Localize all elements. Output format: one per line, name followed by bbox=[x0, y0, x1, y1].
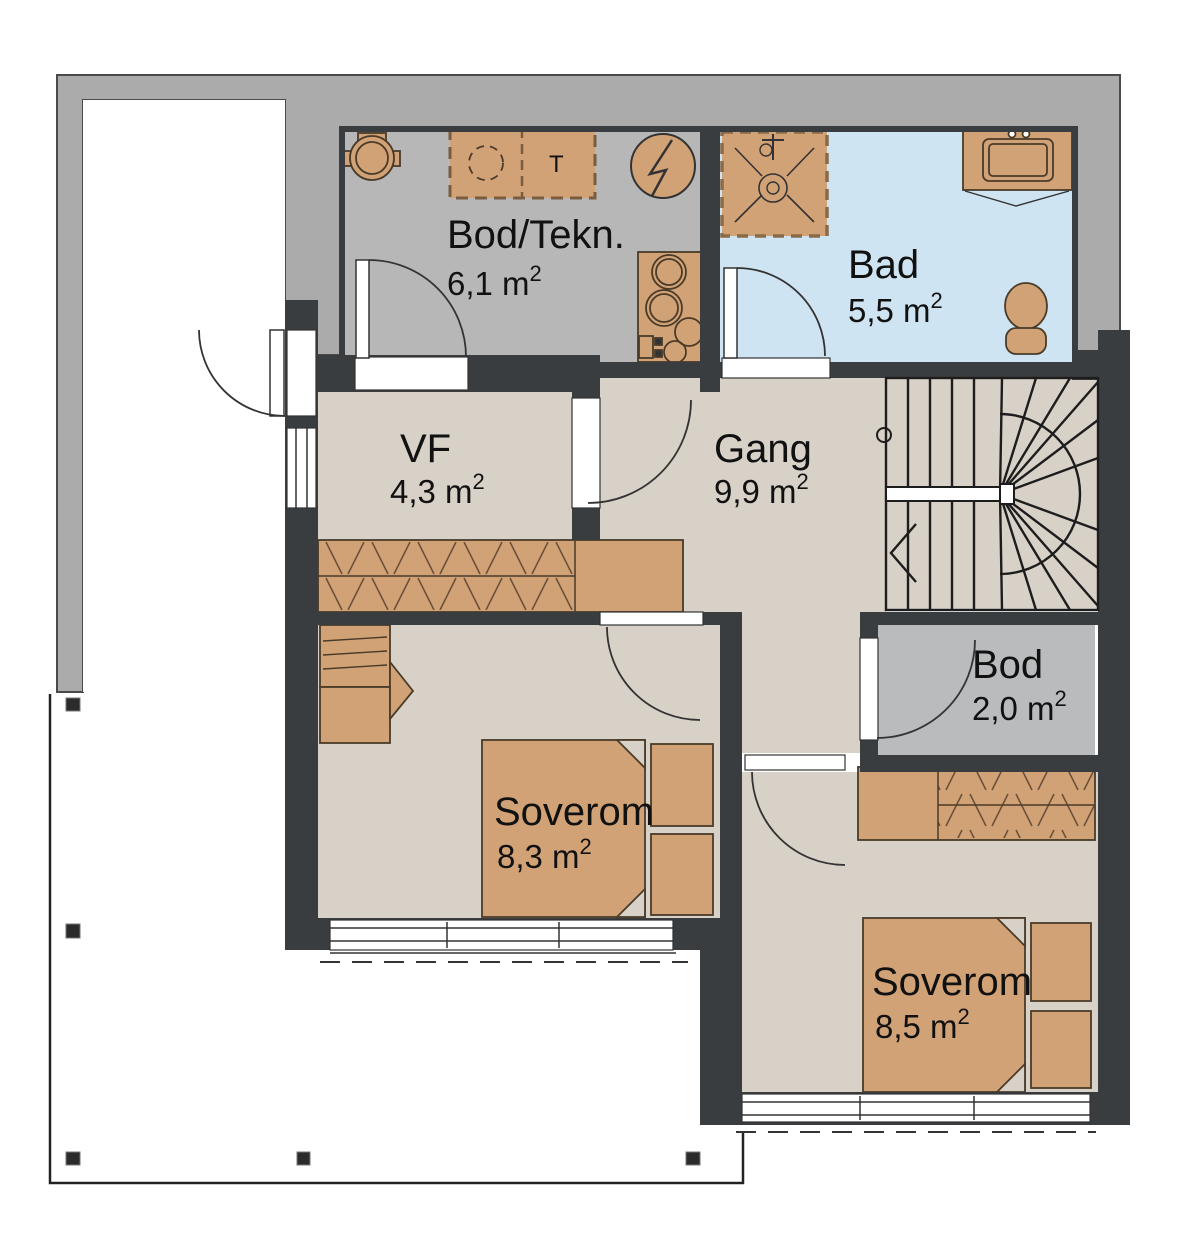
room-label-soverom1: Soverom bbox=[494, 790, 654, 834]
toilet-icon bbox=[1005, 283, 1047, 354]
terrace-area bbox=[83, 100, 285, 692]
wall-gang-top-thin bbox=[600, 362, 1098, 378]
electrical-panel-icon bbox=[631, 134, 695, 198]
wall-bodtekn-left bbox=[339, 126, 345, 362]
soverom1-door-opening bbox=[600, 612, 703, 625]
bodtekn-door-opening bbox=[355, 357, 468, 390]
entry-door-leaf bbox=[270, 330, 284, 416]
wall-exterior-right bbox=[1098, 330, 1130, 1125]
room-label-soverom2: Soverom bbox=[872, 960, 1032, 1004]
wall-soverom-divider bbox=[720, 625, 742, 918]
washer-dryer-icon bbox=[450, 128, 595, 198]
shower-icon bbox=[722, 132, 827, 236]
vf-gang-door-opening bbox=[572, 398, 600, 508]
wall-bodtekn-bad-divider bbox=[700, 126, 720, 392]
room-label-bad: Bad bbox=[848, 243, 919, 287]
entry-door-opening bbox=[287, 330, 316, 416]
room-area-bodtekn: 6,1 m2 bbox=[447, 261, 542, 302]
room-area-gang: 9,9 m2 bbox=[714, 469, 809, 510]
bad-door-leaf bbox=[724, 268, 737, 358]
floor-plan-page: Bod/Tekn. 6,1 m2 Bad 5,5 m2 VF 4,3 m2 Ga… bbox=[0, 0, 1191, 1248]
room-label-vf: VF bbox=[400, 427, 451, 471]
room-gang-corridor-floor bbox=[742, 612, 860, 753]
room-area-bad: 5,5 m2 bbox=[848, 288, 943, 329]
wall-bod-bottom bbox=[860, 755, 1098, 772]
deck-post bbox=[297, 1152, 310, 1165]
dryer-label: T bbox=[549, 151, 564, 178]
room-area-soverom1: 8,3 m2 bbox=[497, 834, 592, 875]
window bbox=[742, 1094, 1090, 1122]
deck-post bbox=[66, 1152, 80, 1165]
wall-bad-right bbox=[1072, 126, 1078, 362]
soverom2-door-opening bbox=[745, 755, 845, 770]
bod-door-opening bbox=[860, 638, 878, 740]
room-area-vf: 4,3 m2 bbox=[390, 469, 485, 510]
wall-corner-bad bbox=[1072, 350, 1102, 380]
tech-cabinet-icon bbox=[638, 252, 709, 363]
room-label-gang: Gang bbox=[714, 427, 812, 471]
room-area-soverom2: 8,5 m2 bbox=[875, 1004, 970, 1045]
bodtekn-door-leaf bbox=[356, 260, 369, 358]
wall-bod-top bbox=[860, 612, 1098, 625]
floor-plan-svg: Bod/Tekn. 6,1 m2 Bad 5,5 m2 VF 4,3 m2 Ga… bbox=[0, 0, 1191, 1248]
deck-post bbox=[66, 698, 80, 711]
wardrobe-icon bbox=[858, 767, 1095, 840]
deck-post bbox=[686, 1152, 700, 1165]
wardrobe-icon bbox=[318, 540, 683, 612]
stairs-handrail bbox=[886, 487, 1008, 501]
room-area-bod: 2,0 m2 bbox=[972, 686, 1067, 727]
deck-post bbox=[66, 924, 80, 938]
bad-door-opening bbox=[722, 358, 830, 378]
room-label-bodtekn: Bod/Tekn. bbox=[447, 213, 625, 257]
room-label-bod: Bod bbox=[972, 643, 1043, 687]
window bbox=[287, 428, 316, 508]
window bbox=[330, 920, 676, 953]
